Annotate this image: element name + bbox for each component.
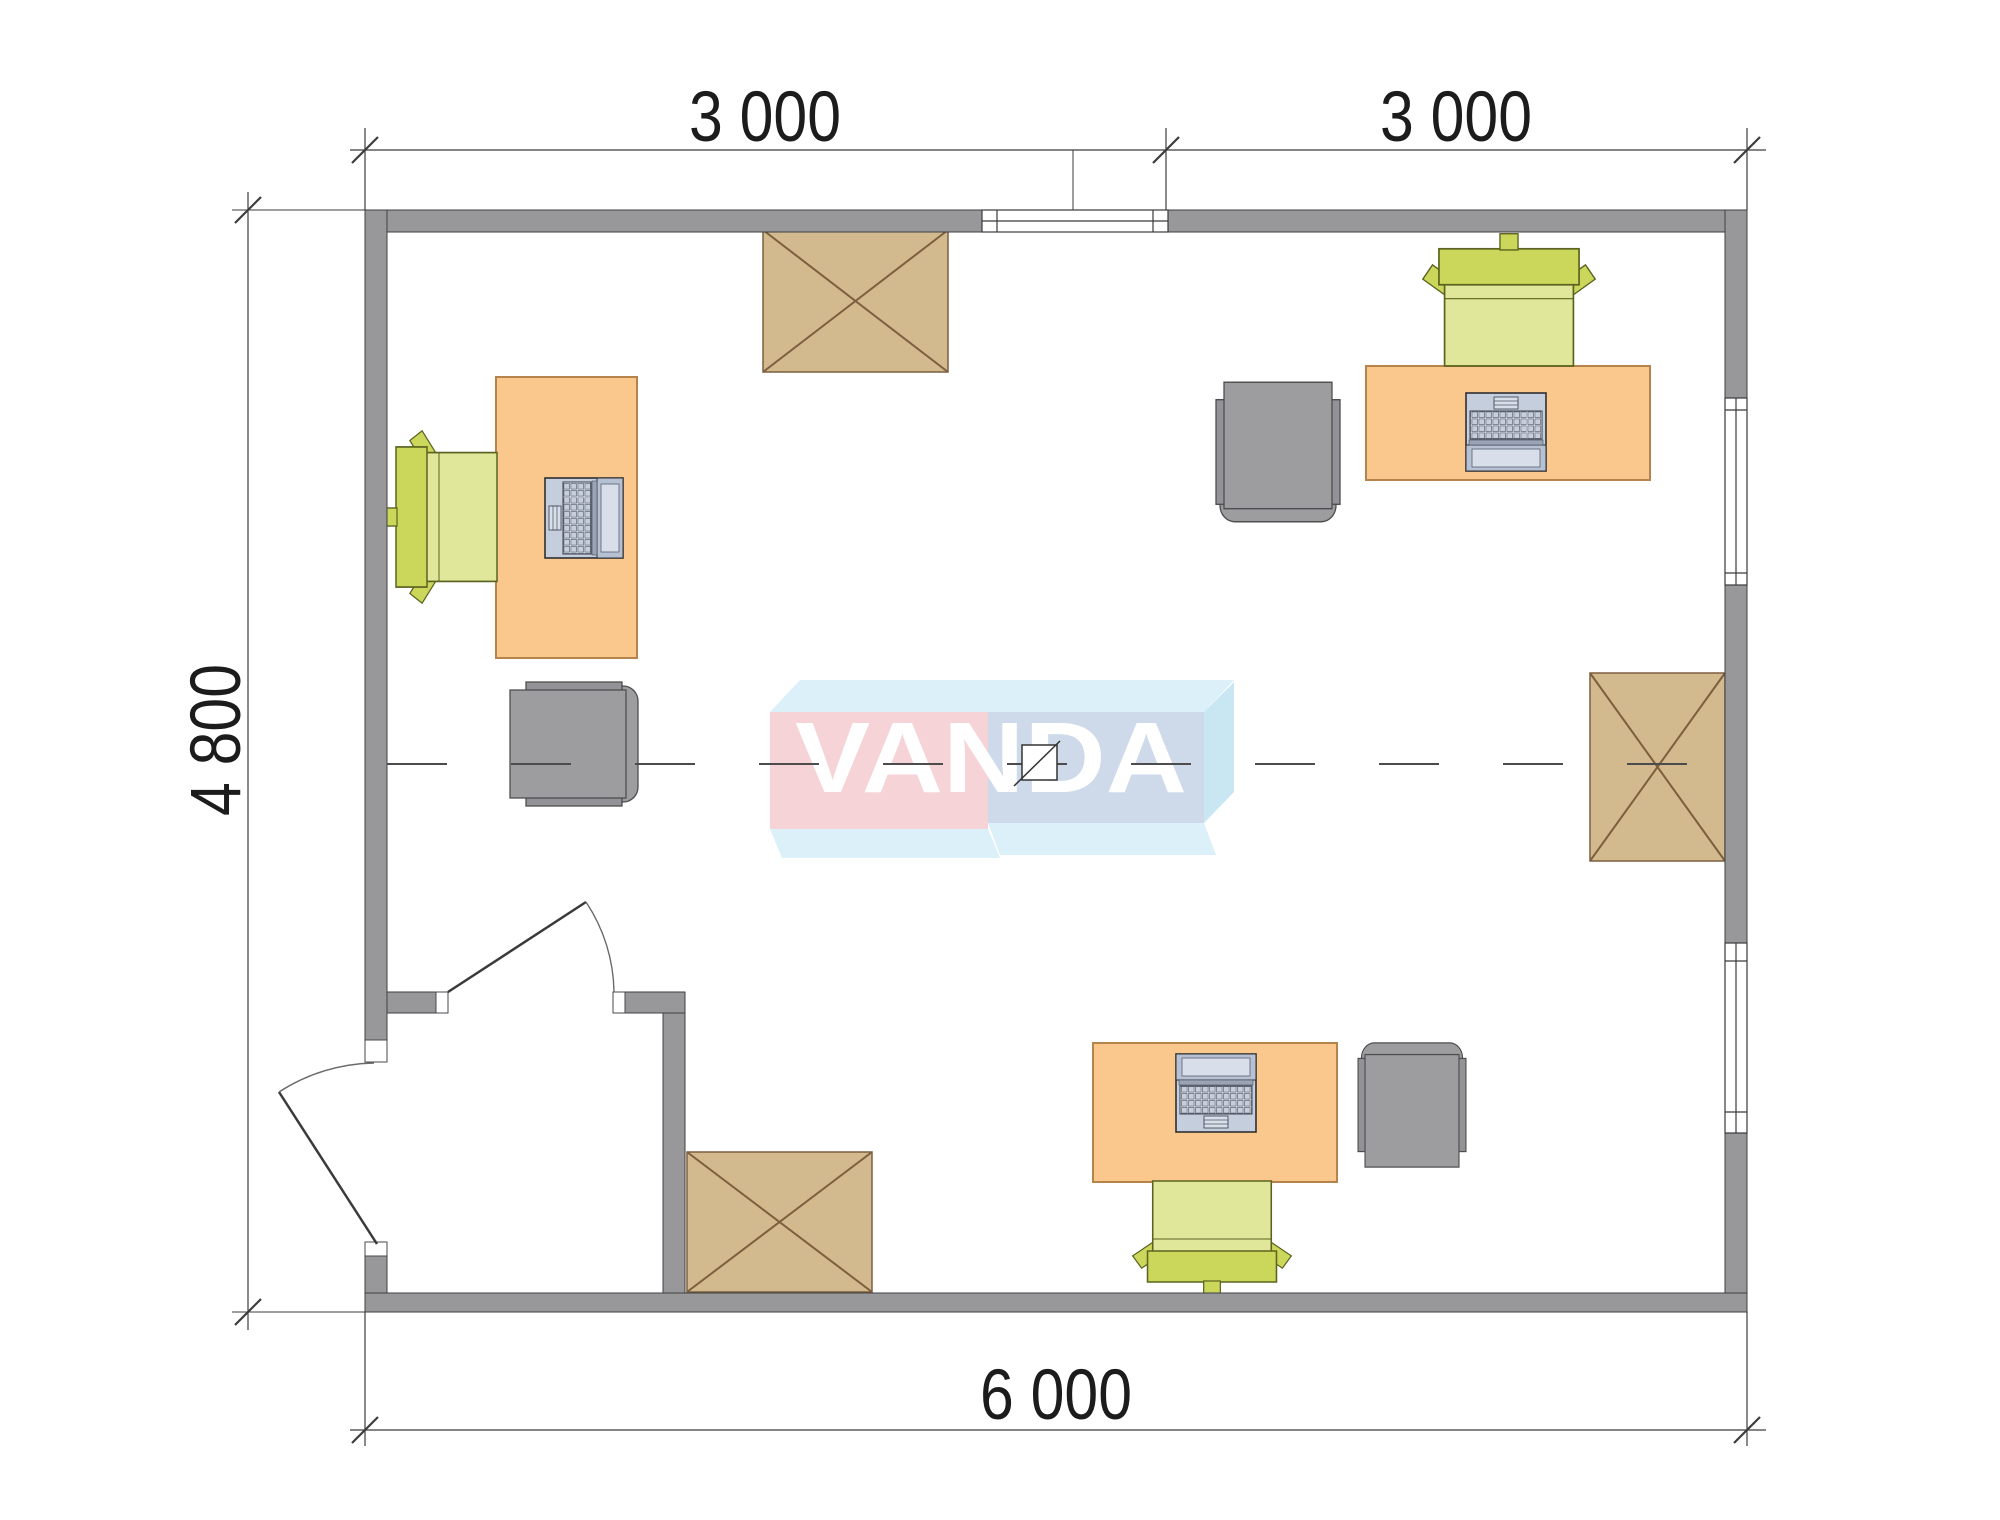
crossed-box-bottom-left: [687, 1152, 872, 1292]
dim-label-top-left: 3 000: [689, 78, 841, 157]
office-chair-left: [383, 431, 497, 603]
jamb-entry-top: [365, 1040, 387, 1062]
crossed-box-top: [763, 230, 948, 372]
armchair-top-right: [1216, 382, 1340, 522]
logo-bottom-face-left: [770, 829, 1000, 858]
dim-label-bottom: 6 000: [980, 1356, 1132, 1435]
logo-wordmark: VANDA: [795, 702, 1187, 814]
logo-bottom-face-right: [988, 823, 1216, 855]
office-chair-top-right: [1423, 234, 1595, 366]
window-right-lower: [1725, 943, 1747, 1133]
jamb-interior-right: [613, 992, 625, 1013]
dim-label-top-right: 3 000: [1380, 78, 1532, 157]
dim-label-left: 4 800: [177, 664, 256, 816]
wall-right-upper: [1725, 210, 1747, 398]
floor-plan-drawing: VANDA: [0, 0, 2000, 1520]
wall-right-middle: [1725, 585, 1747, 943]
window-right-upper: [1725, 398, 1747, 585]
jamb-interior-left: [436, 992, 448, 1013]
window-top: [982, 210, 1168, 232]
laptop-bottom: [1176, 1054, 1256, 1132]
crossed-box-right: [1590, 673, 1725, 861]
armchair-bottom: [1358, 1043, 1466, 1167]
wall-left: [365, 210, 387, 1040]
laptop-top-right: [1466, 393, 1546, 471]
wall-top-left: [365, 210, 982, 232]
armchair-left: [510, 682, 638, 806]
wall-top-right: [1168, 210, 1747, 232]
wall-vestibule-right: [625, 992, 685, 1013]
floor-plan-canvas: VANDA: [0, 0, 2000, 1520]
wall-left-stub: [365, 1256, 387, 1293]
office-chair-bottom: [1133, 1181, 1292, 1295]
wall-right-lower: [1725, 1133, 1747, 1293]
laptop-left: [545, 478, 623, 558]
vanda-logo: VANDA: [770, 680, 1234, 858]
wall-vestibule-left: [387, 992, 436, 1013]
wall-bottom: [365, 1293, 1747, 1312]
wall-vestibule-vertical: [663, 1013, 685, 1293]
